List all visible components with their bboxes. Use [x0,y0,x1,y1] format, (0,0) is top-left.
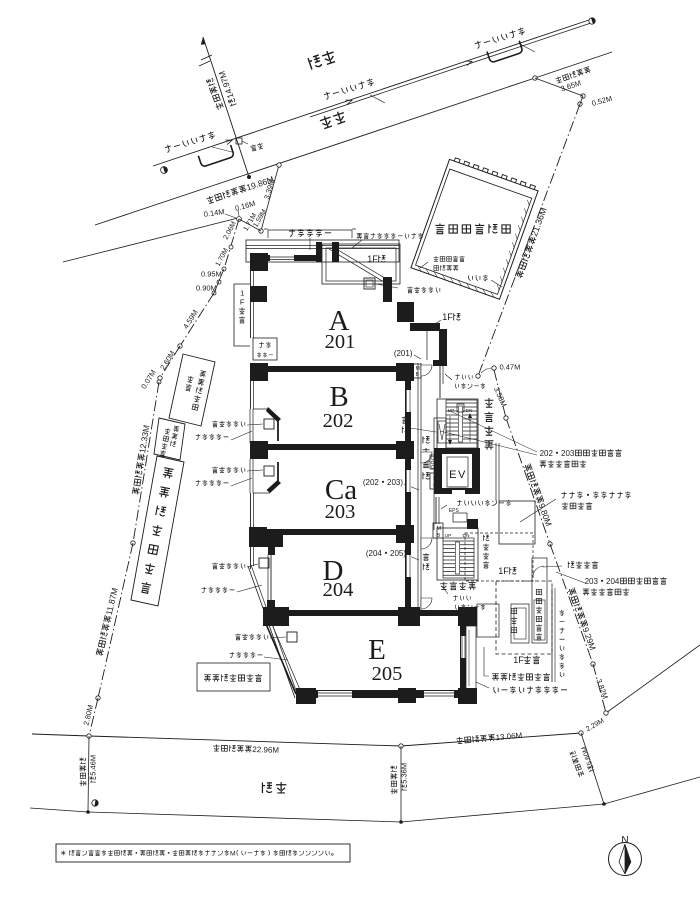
svg-text:DN: DN [466,408,473,414]
svg-text:205: 205 [372,663,403,685]
svg-text:203: 203 [561,449,575,458]
svg-text:1: 1 [240,289,244,298]
svg-text:0.47M: 0.47M [499,363,520,372]
svg-text:205): 205) [390,549,406,558]
svg-text:5.36M: 5.36M [400,763,409,784]
svg-text:1F: 1F [513,655,524,665]
svg-text:(202: (202 [363,478,380,487]
svg-text:1F: 1F [367,254,378,264]
svg-text:EV: EV [449,469,467,481]
svg-text:203: 203 [585,577,599,586]
svg-text:F: F [240,298,245,307]
svg-text:5.46M: 5.46M [89,755,98,776]
svg-text:0.95M: 0.95M [201,270,222,279]
svg-text:202: 202 [540,449,554,458]
svg-text:M: M [230,850,236,857]
svg-text:204: 204 [606,577,620,586]
svg-text:1F: 1F [442,312,453,322]
svg-text:B: B [433,483,437,489]
svg-text:202: 202 [323,410,354,432]
svg-text:UP: UP [448,408,455,414]
svg-text:UP: UP [445,533,452,539]
svg-text:(201): (201) [394,349,413,358]
svg-text:203: 203 [325,501,356,523]
svg-text:204: 204 [323,579,354,601]
svg-text:201: 201 [325,331,356,353]
svg-text:22.96M: 22.96M [252,745,279,755]
svg-text:E: E [368,634,386,666]
svg-text:1F: 1F [498,566,509,576]
svg-text:(204: (204 [366,549,383,558]
svg-text:B: B [329,381,348,413]
svg-text:DN: DN [463,533,470,539]
svg-text:M: M [433,476,438,482]
svg-text:203): 203) [387,478,403,487]
